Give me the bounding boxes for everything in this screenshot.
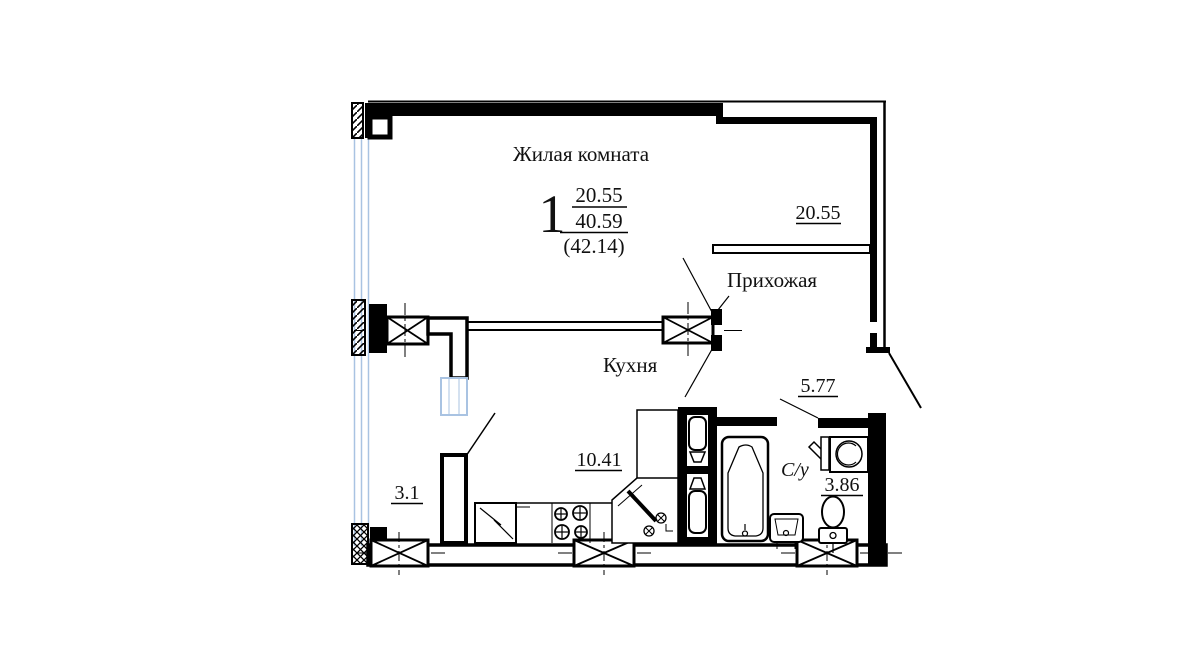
stove [555,506,587,539]
overall-area: (42.14) [563,234,624,258]
total-area: 40.59 [575,209,622,233]
floor-plan-canvas: Жилая комната 1 20.55 40.59 (42.14) Прих… [0,0,1200,667]
plumbing-shaft [678,407,717,545]
leader-corridor [780,399,818,418]
kitchen-partition [467,322,663,330]
kitchen-column [645,302,742,358]
living-room-label: Жилая комната [513,142,650,166]
bathroom-area-value: 3.86 [825,474,860,496]
corridor-area-value: 5.77 [801,375,836,397]
kitchen-area: 10.41 [575,449,622,471]
balcony-window [441,378,467,415]
entrance-door-leaf [889,353,921,408]
balcony-door-leaf [466,413,495,456]
leader-kitchen [685,344,715,397]
fridge [475,503,516,543]
rooms-count: 1 [539,184,566,244]
bathroom-top-wall-left [717,417,777,426]
corridor-area: 5.77 [798,375,838,397]
washing-machine [830,437,868,472]
floor-plan-page: Жилая комната 1 20.55 40.59 (42.14) Прих… [0,0,1200,667]
loggia-partition [442,455,466,543]
kitchen-label: Кухня [603,353,658,377]
hallway-area-value: 20.55 [796,202,841,224]
hallway-area: 20.55 [796,202,842,224]
kitchen-fixtures [475,410,678,543]
wall-top-left [368,103,718,116]
bathroom-right-wall [868,413,886,565]
balcony-area-value: 3.1 [395,482,420,504]
bathtub [722,437,768,541]
wall-top-right [721,117,877,124]
hallway-partition [713,245,870,253]
apartment-summary: 1 20.55 40.59 (42.14) [539,183,629,258]
bathroom-top-wall-right [818,418,870,428]
wall-right-inner [870,117,877,322]
hallway-label: Прихожая [727,268,817,292]
living-area: 20.55 [575,183,622,207]
bathroom-area: 3.86 [821,474,863,496]
corner-sink [612,410,678,543]
kitchen-l-wall [428,318,467,378]
kitchen-area-value: 10.41 [577,449,622,471]
balcony-area: 3.1 [391,482,423,504]
bathroom-label: С/у [781,459,809,481]
